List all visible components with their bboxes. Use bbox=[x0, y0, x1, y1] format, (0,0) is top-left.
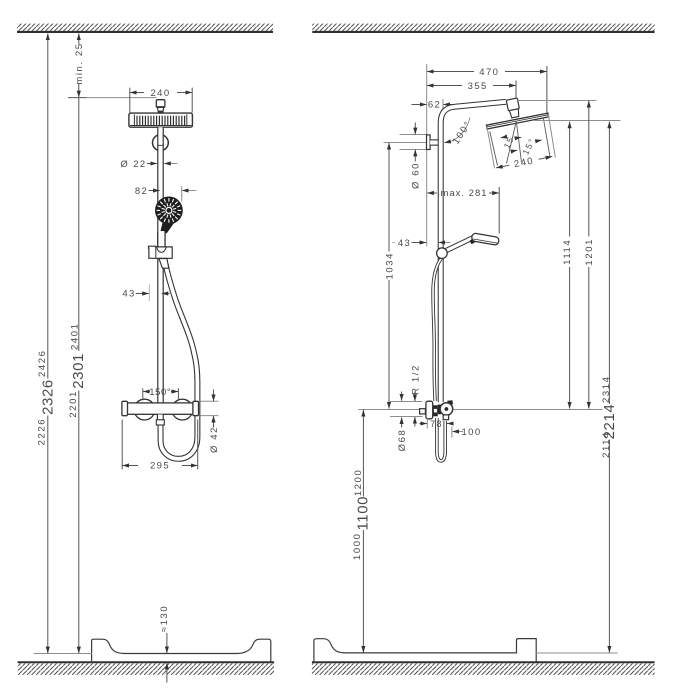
svg-text:min. 25: min. 25 bbox=[74, 42, 85, 84]
svg-text:2201: 2201 bbox=[68, 390, 79, 418]
svg-text:2401: 2401 bbox=[69, 322, 80, 350]
svg-text:150°: 150° bbox=[149, 387, 171, 398]
svg-text:Ø 42: Ø 42 bbox=[209, 426, 220, 453]
svg-text:max. 281: max. 281 bbox=[440, 188, 487, 199]
svg-text:R 1/2: R 1/2 bbox=[410, 364, 421, 395]
svg-text:100°: 100° bbox=[451, 119, 474, 147]
svg-text:240: 240 bbox=[150, 88, 170, 99]
svg-text:240: 240 bbox=[513, 156, 535, 171]
svg-text:43: 43 bbox=[122, 289, 135, 300]
svg-text:Ø 22: Ø 22 bbox=[120, 159, 146, 170]
svg-text:2301: 2301 bbox=[70, 353, 87, 389]
svg-text:2426: 2426 bbox=[37, 349, 48, 377]
svg-text:62: 62 bbox=[428, 100, 441, 111]
svg-text:2226: 2226 bbox=[37, 418, 48, 446]
svg-text:Ø68: Ø68 bbox=[397, 429, 408, 452]
svg-text:78: 78 bbox=[430, 419, 443, 429]
svg-text:2114: 2114 bbox=[601, 431, 612, 458]
svg-text:1200: 1200 bbox=[353, 469, 364, 497]
svg-text:43: 43 bbox=[398, 238, 411, 249]
svg-text:2314: 2314 bbox=[601, 375, 612, 403]
svg-text:1201: 1201 bbox=[584, 238, 595, 266]
svg-text:≈130: ≈130 bbox=[159, 605, 170, 632]
svg-text:1000: 1000 bbox=[352, 533, 363, 561]
svg-text:82: 82 bbox=[135, 186, 148, 197]
svg-text:355: 355 bbox=[468, 81, 488, 92]
svg-text:100: 100 bbox=[461, 427, 481, 438]
svg-text:1034: 1034 bbox=[384, 252, 395, 280]
svg-text:15°: 15° bbox=[520, 136, 537, 156]
svg-text:Ø 60: Ø 60 bbox=[411, 162, 422, 189]
svg-text:1100: 1100 bbox=[354, 496, 371, 531]
svg-text:295: 295 bbox=[150, 461, 170, 472]
svg-text:1114: 1114 bbox=[562, 239, 573, 265]
svg-text:15: 15 bbox=[502, 134, 517, 150]
svg-text:470: 470 bbox=[479, 67, 499, 78]
svg-text:2326: 2326 bbox=[39, 379, 56, 415]
